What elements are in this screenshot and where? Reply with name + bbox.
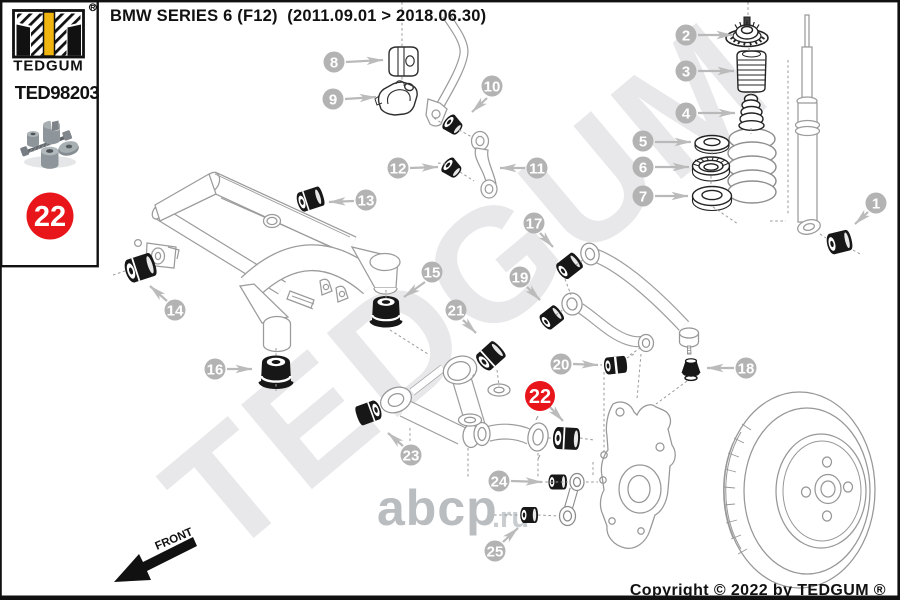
svg-text:13: 13 — [358, 192, 375, 209]
svg-text:7: 7 — [639, 188, 647, 205]
svg-text:3: 3 — [682, 63, 690, 80]
svg-text:21: 21 — [448, 302, 465, 319]
svg-text:5: 5 — [639, 133, 647, 150]
svg-text:2: 2 — [682, 27, 690, 44]
svg-text:23: 23 — [403, 447, 420, 464]
svg-text:19: 19 — [512, 269, 529, 286]
svg-text:abcp: abcp — [377, 480, 498, 536]
svg-text:22: 22 — [529, 386, 551, 408]
svg-text:1: 1 — [872, 195, 880, 212]
svg-text:BMW SERIES 6 (F12) (2011.09.0: BMW SERIES 6 (F12) (2011.09.01 > 2018.06… — [110, 7, 486, 25]
svg-text:10: 10 — [484, 78, 501, 95]
svg-text:14: 14 — [167, 302, 184, 319]
svg-text:24: 24 — [491, 473, 508, 490]
svg-text:15: 15 — [424, 264, 441, 281]
svg-text:16: 16 — [207, 361, 224, 378]
svg-text:12: 12 — [390, 160, 407, 177]
svg-text:20: 20 — [553, 356, 570, 373]
svg-text:9: 9 — [329, 91, 337, 108]
svg-text:R: R — [90, 3, 96, 12]
svg-text:TED98203: TED98203 — [15, 82, 100, 103]
svg-text:8: 8 — [330, 54, 338, 71]
svg-text:6: 6 — [639, 159, 647, 176]
svg-text:4: 4 — [682, 105, 691, 122]
svg-text:TEDGUM: TEDGUM — [13, 58, 83, 75]
svg-text:25: 25 — [487, 543, 504, 560]
svg-text:18: 18 — [738, 360, 755, 377]
svg-text:17: 17 — [526, 215, 543, 232]
svg-text:11: 11 — [529, 160, 545, 177]
svg-text:22: 22 — [34, 201, 66, 233]
